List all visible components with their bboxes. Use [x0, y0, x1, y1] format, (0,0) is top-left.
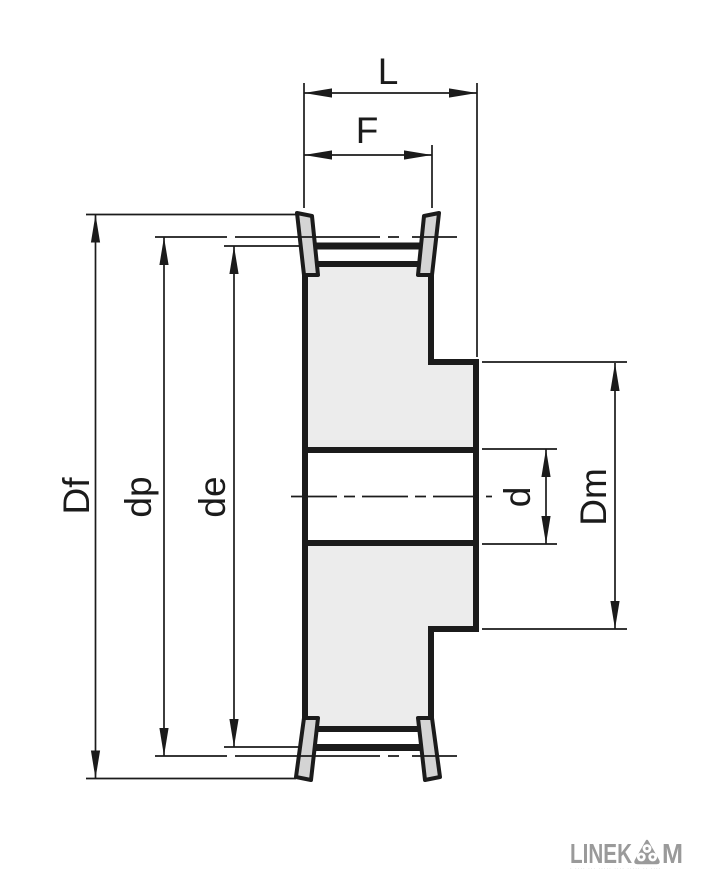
technical-drawing: L F Df dp de: [0, 0, 712, 881]
arrowhead-L-left: [304, 88, 332, 97]
arrowhead-de-top: [229, 246, 238, 274]
label-outside-diameter: de: [192, 476, 233, 517]
arrowhead-Df-bottom: [91, 751, 100, 779]
flange-bottom-left: [296, 718, 318, 780]
dimension-outside-diameter: de: [192, 246, 239, 747]
roller-right-dot: [651, 855, 654, 858]
linekom-logo: LINEK M · ···· ··· ····· ···· ····· ·· ·…: [570, 838, 683, 872]
arrowhead-dp-top: [159, 237, 168, 265]
logo-tagline: · ···· ··· ····· ···· ····· ·· ····: [570, 866, 661, 872]
arrowhead-L-right: [449, 88, 477, 97]
label-face-width: F: [356, 110, 379, 151]
dimension-hub-diameter: Dm: [573, 363, 620, 629]
flange-top-right: [418, 213, 439, 275]
roller-top-dot: [645, 847, 648, 850]
dimension-flange-diameter: Df: [56, 215, 100, 779]
arrowhead-Df-top: [91, 215, 100, 243]
drawing-page: L F Df dp de: [0, 0, 712, 881]
label-flange-diameter: Df: [56, 477, 97, 515]
arrowhead-F-right: [404, 150, 432, 159]
arrowhead-dp-bottom: [159, 728, 168, 756]
arrowhead-d-bottom: [541, 516, 550, 544]
arrowhead-F-left: [304, 150, 332, 159]
arrowhead-Dm-top: [610, 363, 619, 391]
dimension-pitch-diameter: dp: [118, 237, 169, 756]
roller-left-dot: [640, 855, 643, 858]
logo-word-start: LINEK: [570, 838, 632, 869]
logo-word-end: M: [662, 838, 683, 869]
dimension-bore-diameter: d: [497, 449, 551, 544]
label-hub-diameter: Dm: [573, 468, 614, 526]
label-bore-diameter: d: [497, 487, 538, 508]
three-rollers-emblem-icon: [636, 841, 659, 863]
label-overall-length: L: [378, 51, 399, 92]
dimension-face-width: F: [304, 110, 432, 160]
dimension-overall-length: L: [304, 51, 477, 98]
pulley-section: [291, 213, 492, 780]
flange-top-left: [297, 213, 318, 275]
label-pitch-diameter: dp: [118, 476, 159, 517]
arrowhead-d-top: [541, 449, 550, 477]
arrowhead-Dm-bottom: [610, 601, 619, 629]
flange-bottom-right: [418, 718, 440, 780]
arrowhead-de-bottom: [229, 719, 238, 747]
